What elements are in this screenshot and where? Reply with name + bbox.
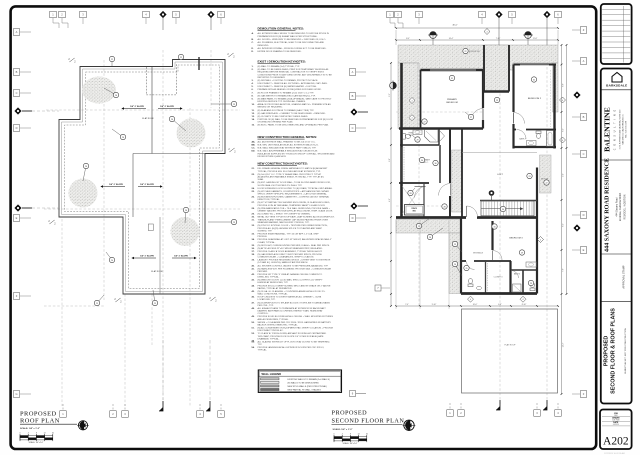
svg-text:AND ACCESSORIES, TYPICAL.: AND ACCESSORIES, TYPICAL. (258, 318, 290, 321)
svg-text:Encinitas, California 92024: Encinitas, California 92024 (619, 192, 622, 221)
svg-text:1/4":1' SLOPE: 1/4":1' SLOPE (140, 183, 154, 186)
svg-text:10.: 10. (252, 104, 255, 106)
svg-text:14.: 14. (252, 118, 255, 121)
svg-text:BATH 3: BATH 3 (514, 273, 520, 276)
svg-text:8'-0": 8'-0" (406, 38, 410, 40)
svg-text:PER MFR.: PER MFR. (258, 271, 269, 273)
svg-text:22: 22 (464, 51, 466, 53)
svg-text:BB.: BB. (252, 145, 256, 147)
svg-text:ROOF CRICKETS TO DIVERT WATER: ROOF CRICKETS TO DIVERT WATER AT ALL CHI… (258, 296, 322, 299)
svg-text:9'-8": 9'-8" (389, 158, 391, 162)
svg-text:25.: 25. (252, 191, 255, 193)
svg-text:LOCATIONS, TYP.: LOCATIONS, TYP. (258, 298, 276, 301)
svg-text:6'-2": 6'-2" (563, 128, 565, 132)
svg-text:PROVIDE 4 FIN. AT PAN HEAD; TE: PROVIDE 4 FIN. AT PAN HEAD; TEMPERED SAF… (258, 204, 326, 207)
svg-text:51.: 51. (252, 328, 255, 330)
svg-text:(N) 26 GA. G.I. FLASHING + COU: (N) 26 GA. G.I. FLASHING + COUNTERFLASHI… (258, 290, 326, 293)
svg-text:47.: 47. (252, 301, 255, 304)
svg-text:44.: 44. (252, 284, 255, 287)
svg-text:(E) ROOF: (E) ROOF (541, 179, 548, 181)
svg-text:REQUIRED BEFORE REMOVAL. CONTR: REQUIRED BEFORE REMOVAL. CONTRACTOR TO V… (258, 71, 325, 74)
svg-text:25: 25 (96, 303, 98, 305)
svg-text:26: 26 (85, 166, 87, 168)
svg-text:WALL CONDITIONS, TYPICAL.: WALL CONDITIONS, TYPICAL. (258, 293, 289, 296)
svg-text:PROPOSED: PROPOSED (604, 336, 610, 367)
svg-text:DISCONNECT + REMOVE ALL FIXTUR: DISCONNECT + REMOVE ALL FIXTURES + APPLI… (258, 82, 328, 85)
svg-text:4: 4 (487, 31, 488, 33)
svg-text:PAVING, TYPICAL AT PERIMETER.: PAVING, TYPICAL AT PERIMETER. (258, 287, 293, 290)
svg-text:1/4":1' SLOPE: 1/4":1' SLOPE (130, 105, 144, 108)
svg-text:FILL FRAME GENERAL FINISH MATE: FILL FRAME GENERAL FINISH MATERIALS TO M… (258, 167, 329, 170)
svg-text:23: 23 (528, 176, 530, 178)
svg-text:31: 31 (533, 79, 535, 81)
svg-text:7'-4": 7'-4" (405, 304, 409, 306)
svg-text:SAN DIEGO, CALIFORNIA 92131: SAN DIEGO, CALIFORNIA 92131 (622, 113, 625, 144)
svg-text:NEEDED OR REQUIRED.: NEEDED OR REQUIRED. (258, 107, 284, 109)
svg-text:8: 8 (350, 433, 351, 435)
svg-text:31: 31 (451, 78, 453, 80)
svg-text:TYPICAL.: TYPICAL. (258, 349, 268, 352)
svg-text:29: 29 (465, 268, 467, 270)
svg-text:39.: 39. (252, 260, 255, 262)
svg-text:STACK: STACK (411, 207, 417, 210)
svg-text:TYP.: TYP. (258, 344, 263, 346)
svg-text:NEW PARTIAL HT WALL / RAILING: NEW PARTIAL HT WALL / RAILING (288, 388, 322, 391)
svg-text:8'-6": 8'-6" (563, 83, 565, 87)
svg-text:444 SAXONY ROAD RESIDENCE: 444 SAXONY ROAD RESIDENCE (604, 158, 611, 252)
svg-text:PROVIDE LANDINGS AT ALL EXTERI: PROVIDE LANDINGS AT ALL EXTERIOR DOORS P… (258, 346, 325, 349)
svg-text:26: 26 (115, 95, 117, 97)
svg-text:29: 29 (521, 252, 523, 254)
svg-text:M.B. WALL INSULATION AT INTERI: M.B. WALL INSULATION AT INTERIOR PARTY W… (258, 147, 317, 150)
svg-text:46.: 46. (252, 296, 255, 299)
svg-text:FLAT ROOF: FLAT ROOF (142, 117, 154, 120)
svg-text:A: A (352, 70, 354, 74)
svg-text:ADJACENT; ANY HABITABLE SPACE,: ADJACENT; ANY HABITABLE SPACE, PLYWD ALL… (258, 175, 324, 178)
svg-text:45.: 45. (252, 290, 255, 293)
svg-text:4: 4 (562, 100, 563, 102)
svg-text:6'-8": 6'-8" (498, 304, 502, 306)
svg-text:FROM FIXTURE J) ANCHOR.: FROM FIXTURE J) ANCHOR. (258, 155, 287, 158)
svg-text:CEMENT BACKER; PROVIDE A FIN.: CEMENT BACKER; PROVIDE A FIN. AT ENCLOSU… (258, 209, 334, 212)
svg-text:(N) COMBO WC + SHELF, TYP. (VE: (N) COMBO WC + SHELF, TYP. (VERIFY W/ OW… (258, 213, 311, 215)
svg-text:SCALE: 1/4"=1'-0": SCALE: 1/4"=1'-0" (29, 441, 44, 444)
svg-text:28: 28 (409, 193, 411, 195)
svg-text:SECOND FLOOR PLAN: SECOND FLOOR PLAN (332, 418, 405, 425)
svg-text:33.: 33. (252, 234, 255, 236)
svg-text:SUBMITTAL SET: NOT FOR CONSTRU: SUBMITTAL SET: NOT FOR CONSTRUCTION (624, 328, 627, 374)
svg-text:7'-6": 7'-6" (563, 268, 565, 272)
svg-text:54.: 54. (252, 346, 255, 349)
svg-text:4: 4 (412, 118, 413, 120)
svg-text:23: 23 (418, 226, 420, 228)
svg-text:29.: 29. (252, 213, 255, 215)
svg-text:22.: 22. (252, 174, 255, 176)
svg-text:4: 4 (470, 299, 471, 301)
svg-text:COMBUSTION AIR + CLEARANCES, V: COMBUSTION AIR + CLEARANCES, VERIFY LOCA… (258, 256, 315, 259)
svg-text:DISCONNECT + REMOVE (E) WATER: DISCONNECT + REMOVE (E) WATER HEATER + D… (258, 85, 318, 88)
svg-text:BARKSDALE: BARKSDALE (606, 84, 627, 88)
svg-text:A: A (583, 59, 585, 63)
svg-text:9'-10": 9'-10" (432, 304, 437, 306)
svg-text:16: 16 (366, 433, 368, 435)
svg-text:(N) EXT. LANDING 36" DOOR WALL: (N) EXT. LANDING 36" DOOR WALL; TO BE SL… (258, 181, 331, 184)
svg-text:22: 22 (545, 182, 547, 184)
svg-text:4: 4 (412, 100, 413, 102)
svg-text:E: E (583, 248, 585, 252)
svg-text:SLOPE SHALL NOT EXCEED 2% IN A: SLOPE SHALL NOT EXCEED 2% IN ALL TYP. (258, 184, 303, 187)
svg-text:WALL LEGEND: WALL LEGEND (262, 372, 282, 376)
svg-text:50.: 50. (252, 322, 255, 324)
svg-text:ALL PLUMBING, ELECTRICAL, HVAC: ALL PLUMBING, ELECTRICAL, HVAC TO BE DIS… (258, 41, 325, 44)
svg-text:TEL: 619.555.0188: TEL: 619.555.0188 (626, 120, 628, 138)
svg-text:12: 12 (44, 432, 46, 434)
svg-text:B: B (16, 70, 18, 74)
svg-text:DWELLING, TYPICAL.: DWELLING, TYPICAL. (258, 276, 280, 279)
svg-text:CLOSET 3: CLOSET 3 (494, 277, 503, 279)
svg-text:38.: 38. (252, 254, 255, 256)
svg-text:42.: 42. (252, 273, 255, 276)
svg-text:(E) WALLS TO BE DEMOLISHED: (E) WALLS TO BE DEMOLISHED (288, 381, 320, 384)
svg-text:28.: 28. (252, 208, 255, 210)
svg-text:30: 30 (421, 160, 423, 162)
svg-text:7'-10": 7'-10" (496, 38, 501, 40)
svg-text:ROOF PLAN: ROOF PLAN (20, 418, 60, 425)
svg-text:OR WINDOW OPENING PER PLAN.: OR WINDOW OPENING PER PLAN. (258, 121, 294, 124)
svg-text:PROVIDE STUCCO WEEP SCREED MIN: PROVIDE STUCCO WEEP SCREED MIN 4" ABOVE … (258, 284, 332, 287)
svg-text:SCALE: 1/4"=1'-0": SCALE: 1/4"=1'-0" (343, 442, 358, 445)
svg-text:SECOND FLOOR & ROOF PLANS: SECOND FLOOR & ROOF PLANS (611, 308, 617, 394)
svg-text:0: 0 (20, 432, 21, 434)
svg-text:22: 22 (180, 57, 182, 59)
svg-text:TO CLASS 'A' TORCH-DOWN, ASPHA: TO CLASS 'A' TORCH-DOWN, ASPHALT ROOFING… (258, 332, 327, 335)
svg-text:1/4":1' SLOPE: 1/4":1' SLOPE (160, 105, 174, 108)
svg-text:(E) SLAB AND FOOTINGS TO REMAI: (E) SLAB AND FOOTINGS TO REMAIN (GALV. T… (258, 109, 315, 112)
svg-text:SPECS; VERIFY SPECIFIC REQUIRE: SPECS; VERIFY SPECIFIC REQUIREMENTS + LA… (258, 192, 328, 195)
svg-text:8: 8 (36, 432, 37, 434)
svg-text:24: 24 (454, 264, 456, 266)
svg-text:ALL EXHAUST FANS TO TERMINATE: ALL EXHAUST FANS TO TERMINATE AT EXTERIO… (258, 307, 327, 310)
svg-text:DRAINAGE, TYPICAL.: DRAINAGE, TYPICAL. (258, 337, 280, 340)
svg-text:C O N S U L T I N G: C O N S U L T I N G (615, 109, 617, 151)
svg-text:FLAT ROOF: FLAT ROOF (504, 344, 516, 347)
svg-text:'DIPLOMAT'; PROVIDE ROOF SLOPE: 'DIPLOMAT'; PROVIDE ROOF SLOPE 1/4":12 M… (258, 335, 325, 338)
svg-text:21.: 21. (252, 168, 255, 170)
svg-text:EXISTING SERVICE TYP. DURING A: EXISTING SERVICE TYP. DURING ALL PHASES. (258, 100, 307, 103)
svg-text:4'-6": 4'-6" (389, 198, 391, 202)
svg-text:52.: 52. (252, 333, 255, 335)
svg-text:PROVIDE STAIR HANDRAIL, TYP. 3: PROVIDE STAIR HANDRAIL, TYP. 34"-38" AFF… (258, 233, 320, 236)
svg-text:(N) ATTIC ACCESS 22"x30" MIN W: (N) ATTIC ACCESS 22"x30" MIN W/ WEATHERS… (258, 247, 324, 250)
svg-text:16: 16 (52, 432, 54, 434)
svg-text:44.: 44. (252, 340, 255, 343)
svg-text:(N) 2x6 @16" O.C. TYPE 'X' SHE: (N) 2x6 @16" O.C. TYPE 'X' SHEAR WALL PE… (258, 173, 322, 176)
svg-text:24: 24 (429, 237, 431, 239)
svg-text:(E) GAS FIREPLACE + CHIMNEY TO: (E) GAS FIREPLACE + CHIMNEY TO BE DEMOLI… (258, 112, 327, 115)
svg-text:ALL (N) EXTERIOR WALL FRAMING: ALL (N) EXTERIOR WALL FRAMING TO BE 2x6 … (258, 141, 316, 144)
svg-text:PROFILE.: PROFILE. (258, 236, 268, 238)
svg-text:32.: 32. (252, 225, 255, 227)
svg-text:B: B (352, 94, 354, 98)
svg-text:23: 23 (233, 104, 235, 106)
svg-text:ALL EXTERIOR WALL SIDING TO BE: ALL EXTERIOR WALL SIDING TO BE REMOVED T… (258, 32, 330, 35)
svg-text:PRIMARY: PRIMARY (447, 98, 457, 101)
svg-text:31.: 31. (252, 220, 255, 222)
svg-text:DRAWN: DRAWN (612, 416, 620, 419)
svg-text:ALL SHOWER CONTROL VALVES TO B: ALL SHOWER CONTROL VALVES TO BE PRESSURE… (258, 264, 329, 267)
svg-text:(E) FLOOR FRAMING TO REMAIN (2: (E) FLOOR FRAMING TO REMAIN (2x12 @16" O… (258, 91, 315, 94)
svg-text:(N) 42" HT PARTIAL TILE SHOWER: (N) 42" HT PARTIAL TILE SHOWER ENCLOSURE… (258, 201, 331, 204)
svg-text:DD.: DD. (252, 151, 256, 153)
svg-text:SCREED, TYP.: SCREED, TYP. (258, 230, 273, 232)
svg-text:41.: 41. (252, 267, 255, 270)
svg-text:M.B. WIN. UNIT INSULATION AT A: M.B. WIN. UNIT INSULATION AT ALL EXTERIO… (258, 144, 319, 147)
svg-text:37.: 37. (252, 251, 255, 253)
svg-text:WEATHER BARRIER, MATCH EXIST.: WEATHER BARRIER, MATCH EXIST. PROFILE, T… (258, 221, 310, 224)
svg-text:B: B (583, 115, 585, 119)
svg-text:PROVIDE ALL (E)/(N) LATHING SP: PROVIDE ALL (E)/(N) LATHING SPLICE TO PL… (258, 227, 323, 230)
svg-text:NEW CONSTRUCTION KEYNOTES:: NEW CONSTRUCTION KEYNOTES: (258, 162, 308, 166)
svg-text:16'-4": 16'-4" (449, 38, 454, 40)
svg-text:4: 4 (562, 140, 563, 142)
svg-text:APPROVAL STAMP: APPROVAL STAMP (622, 265, 626, 288)
svg-text:REPORTED TO DESIGNER.: REPORTED TO DESIGNER. (258, 77, 286, 79)
svg-text:30.: 30. (252, 217, 255, 219)
svg-text:25: 25 (154, 303, 156, 305)
svg-text:27: 27 (423, 121, 425, 123)
svg-text:(E) MAIN PANEL TO REMAIN (200A: (E) MAIN PANEL TO REMAIN (200A UPGRADE),… (258, 97, 333, 100)
svg-text:27: 27 (470, 117, 472, 119)
svg-text:40.: 40. (252, 264, 255, 267)
svg-text:DIRECTION, TYPICAL.: DIRECTION, TYPICAL. (258, 198, 281, 201)
svg-text:28: 28 (443, 206, 445, 208)
svg-text:1/4":1' SLOPE: 1/4":1' SLOPE (109, 183, 123, 186)
svg-text:CONDITIONS PRIOR TO ANY DEMO W: CONDITIONS PRIOR TO ANY DEMO WORK. ANY D… (258, 73, 333, 76)
svg-text:13.: 13. (252, 116, 255, 118)
svg-text:(N) A/C CONDENSER ON EQUIPMENT: (N) A/C CONDENSER ON EQUIPMENT PAD; VERI… (258, 327, 334, 330)
svg-text:36.: 36. (252, 248, 255, 250)
svg-text:BATH 2: BATH 2 (519, 138, 525, 141)
svg-text:5'-2": 5'-2" (389, 93, 391, 97)
svg-text:D: D (352, 216, 354, 220)
svg-text:49.: 49. (252, 315, 255, 318)
svg-text:SMOKE + CO ALARMS PER CRC R314: SMOKE + CO ALARMS PER CRC R314 / R315: H… (258, 321, 332, 324)
svg-text:PROVIDE CLASS 'A' ROOF ASSEMBL: PROVIDE CLASS 'A' ROOF ASSEMBLY, TYPICAL… (258, 250, 323, 253)
svg-text:SLAB.: SLAB. (258, 178, 264, 181)
svg-text:D: D (583, 213, 585, 217)
svg-text:PROPOSED: PROPOSED (20, 411, 57, 418)
svg-text:(N) WINDOW / DOOR: U-0.30 MAX,: (N) WINDOW / DOOR: U-0.30 MAX, SHGC 0.23… (258, 279, 323, 282)
svg-text:DATE: DATE (613, 421, 619, 424)
svg-text:1/4":1' SLOPE: 1/4":1' SLOPE (174, 254, 188, 257)
svg-text:FLAT ROOF: FLAT ROOF (151, 270, 163, 273)
svg-text:C: C (16, 91, 18, 95)
svg-text:(E) DRYWALL + FOOTING TO REMAI: (E) DRYWALL + FOOTING TO REMAIN, PROTECT… (258, 79, 319, 82)
svg-text:(E) ELEC. PANEL TO BE DISCONNE: (E) ELEC. PANEL TO BE DISCONNECTED AND U… (258, 124, 330, 127)
svg-text:BEDROOM 3: BEDROOM 3 (509, 238, 523, 240)
svg-text:12.: 12. (252, 113, 255, 115)
svg-text:CLEAR, TYPICAL.: CLEAR, TYPICAL. (258, 241, 276, 244)
svg-text:24: 24 (122, 137, 124, 139)
svg-text:JOB: JOB (614, 413, 619, 415)
svg-text:(N) PRE-FABRICATED TUB + TILE: (N) PRE-FABRICATED TUB + TILE WALL SURRO… (258, 207, 331, 210)
svg-text:0: 0 (334, 433, 335, 435)
svg-text:SCALE: 1/4" = 1'-0": SCALE: 1/4" = 1'-0" (20, 427, 40, 430)
svg-text:14'-2": 14'-2" (563, 342, 565, 347)
svg-text:A202: A202 (603, 436, 629, 448)
svg-text:EGRESS AT BEDROOMS, TYP.: EGRESS AT BEDROOMS, TYP. (258, 281, 289, 284)
svg-text:BEDROOM: BEDROOM (446, 102, 457, 104)
svg-text:ALL INTERIOR DRYWALL, FROM FLO: ALL INTERIOR DRYWALL, FROM FLOORING ECT.… (258, 47, 327, 50)
svg-text:23: 23 (454, 244, 456, 246)
svg-text:29: 29 (416, 139, 418, 141)
svg-text:ALL GLAZING WITHIN 18" OF FLOO: ALL GLAZING WITHIN 18" OF FLOOR OR AT DO… (258, 340, 331, 343)
svg-text:(N) TANKLESS W.H. PER PLUMBING: (N) TANKLESS W.H. PER PLUMBING; PROVIDE … (258, 267, 332, 270)
svg-text:1/22/2024 10:42:18 AM: 1/22/2024 10:42:18 AM (604, 452, 625, 455)
svg-text:(N) DOWNSPOUTS TO SPLASH BLOCK: (N) DOWNSPOUTS TO SPLASH BLOCKS / TIGHTL… (258, 301, 331, 304)
svg-text:(E) WALL TO REMAIN (2x4) TYPIC: (E) WALL TO REMAIN (2x4) TYPICAL, TYP. (258, 65, 301, 68)
svg-text:VESTIBULE: VESTIBULE (473, 253, 484, 255)
svg-text:26.: 26. (252, 197, 255, 199)
svg-text:NEW CONSTRUCTION GENERAL NOTES: NEW CONSTRUCTION GENERAL NOTES: (258, 135, 318, 139)
svg-text:22: 22 (111, 59, 113, 61)
svg-text:PREPARE SITE AS NEEDED OR REQU: PREPARE SITE AS NEEDED OR REQUIRED FOR D… (258, 88, 322, 91)
svg-text:ALL DOORS + WINDOWS TO BE REMO: ALL DOORS + WINDOWS TO BE REMOVED + DISP… (258, 38, 327, 41)
svg-text:27.: 27. (252, 202, 255, 204)
svg-text:11'-8": 11'-8" (533, 38, 538, 40)
svg-text:8'-2": 8'-2" (563, 223, 565, 227)
svg-text:BEDROOM 2: BEDROOM 2 (528, 98, 542, 100)
svg-text:3170 JUPITER ROAD LA MESA, SUI: 3170 JUPITER ROAD LA MESA, SUITE 200 (619, 109, 622, 150)
svg-text:PROVIDE 5/8" TYPE 'X' GWB AT G: PROVIDE 5/8" TYPE 'X' GWB AT GARAGE CEIL… (258, 273, 323, 276)
svg-text:(N) GAS FIREPLACE DIRECT VENT: (N) GAS FIREPLACE DIRECT VENT PER MFR SP… (258, 253, 323, 256)
svg-text:ENTIRE ROOF FRAMING TO BE REMO: ENTIRE ROOF FRAMING TO BE REMOVED. (258, 50, 302, 53)
svg-text:C: C (583, 152, 585, 156)
svg-text:C: C (352, 126, 354, 130)
svg-text:W.I.C.: W.I.C. (424, 162, 429, 164)
svg-text:CC.: CC. (252, 148, 256, 150)
svg-text:BACKUP, INTERCONNECTED, TYPICA: BACKUP, INTERCONNECTED, TYPICAL. (258, 323, 299, 326)
svg-text:DEMOLITION GENERAL NOTES:: DEMOLITION GENERAL NOTES: (258, 27, 304, 31)
svg-text:DOOR SCREENS FLOOR SLOPED TO (: DOOR SCREENS FLOOR SLOPED TO (E) DRAIN; … (258, 187, 333, 190)
svg-text:30: 30 (434, 163, 436, 165)
svg-text:46'-0": 46'-0" (452, 25, 457, 27)
svg-text:(E) ROOF DN: (E) ROOF DN (469, 51, 480, 53)
svg-text:1/4":1' SLOPE: 1/4":1' SLOPE (140, 254, 154, 257)
svg-text:35.: 35. (252, 245, 255, 247)
svg-text:23: 23 (233, 222, 235, 224)
svg-text:(E) GAS METER TO REMAIN (RELOC: (E) GAS METER TO REMAIN (RELOCATE AS REQ… (258, 94, 316, 97)
svg-text:8'-10": 8'-10" (522, 304, 527, 306)
svg-text:34.: 34. (252, 238, 255, 241)
svg-text:NEW STUD WALLS (PER STRUCTURAL: NEW STUD WALLS (PER STRUCTURAL) (288, 385, 328, 388)
svg-text:DAMPER; BATH FANS 50 CFM MIN,: DAMPER; BATH FANS 50 CFM MIN, ENERGY STA… (258, 310, 324, 313)
svg-text:9'-0": 9'-0" (563, 173, 565, 177)
svg-text:PROVIDE SOLID BLOCKING AT ALL: PROVIDE SOLID BLOCKING AT ALL CEILING + … (258, 315, 334, 318)
svg-text:48.: 48. (252, 307, 255, 310)
svg-text:(N) SKYLIGHT, CURB MOUNTED PER: (N) SKYLIGHT, CURB MOUNTED PER MFR; FLAS… (258, 244, 331, 247)
svg-text:SCALE: 1/4" = 1'-0": SCALE: 1/4" = 1'-0" (333, 428, 353, 431)
svg-text:METAL GUTTERS TYP AT ROOF EAVE: METAL GUTTERS TYP AT ROOF EAVE, LEAF SCR… (258, 216, 335, 219)
svg-text:10'-0": 10'-0" (473, 304, 478, 306)
svg-text:PER CIVIL, TYP.: PER CIVIL, TYP. (258, 305, 274, 307)
svg-text:4: 4 (523, 299, 524, 301)
svg-text:24.: 24. (252, 187, 255, 190)
svg-text:31: 31 (493, 226, 495, 228)
svg-text:AA.: AA. (252, 141, 256, 144)
svg-text:(N) ELEVATION FUTURES, CABINET: (N) ELEVATION FUTURES, CABINETRY + LIGHT… (258, 196, 330, 199)
svg-text:DISCONNECT PER ELEC.: DISCONNECT PER ELEC. (258, 330, 284, 332)
svg-text:INSULATION SUPPLIED BY "TRUSCO: INSULATION SUPPLIED BY "TRUSCOR GROUP" O… (258, 152, 336, 155)
svg-text:REMODEL / ADDITION: REMODEL / ADDITION (624, 194, 627, 219)
svg-text:(E) WALL TO BE DEMOLISHED, PRE: (E) WALL TO BE DEMOLISHED, PREP FOR TEMP… (258, 68, 329, 71)
svg-text:34: 34 (502, 209, 504, 211)
svg-text:(14' MAX EQ. LENGTH); MAKE-UP: (14' MAX EQ. LENGTH); MAKE-UP AIR PER ME… (258, 261, 309, 264)
svg-text:D: D (16, 126, 18, 130)
svg-text:11.: 11. (252, 110, 255, 112)
svg-text:EXISTING WALLS TO REMAIN (2x4: EXISTING WALLS TO REMAIN (2x4 WALLS) (288, 378, 330, 381)
svg-text:(N) KITCHEN CABINETS, COUNTERT: (N) KITCHEN CABINETS, COUNTERTOPS + APPL… (258, 190, 330, 193)
svg-text:LAUNDRY: PROVIDE RECESSED W/ B: LAUNDRY: PROVIDE RECESSED W/ BOX + DRYER… (258, 259, 331, 262)
svg-text:REMOVED.: REMOVED. (258, 45, 270, 47)
svg-text:15.: 15. (252, 125, 255, 127)
svg-text:26: 26 (171, 119, 173, 121)
svg-text:G: G (15, 392, 17, 396)
svg-text:4: 4 (540, 239, 541, 241)
svg-text:(E) CLOSETS TO BE COMPLETELY D: (E) CLOSETS TO BE COMPLETELY DEMOLISHED. (258, 116, 309, 118)
svg-text:"HARDIE-PLANK" FIBER-CEMENT LA: "HARDIE-PLANK" FIBER-CEMENT LAP SIDING P… (258, 219, 329, 222)
svg-text:23: 23 (496, 100, 498, 102)
svg-text:PROPOSED: PROPOSED (332, 410, 368, 417)
svg-text:12: 12 (358, 433, 360, 435)
svg-text:EXIST / DEMOLITION KEYNOTES:: EXIST / DEMOLITION KEYNOTES: (258, 60, 306, 64)
svg-text:4: 4 (28, 432, 29, 434)
svg-text:AREA OF PROPOSED ADDITION, GRA: AREA OF PROPOSED ADDITION, GRADING MATCH… (258, 103, 332, 106)
svg-text:TYPICAL; PROVIDE M.B. FILL INS: TYPICAL; PROVIDE M.B. FILL INSULATION AT… (258, 170, 321, 173)
svg-text:4: 4 (342, 433, 343, 435)
svg-text:CONTROL.: CONTROL. (258, 313, 269, 315)
svg-text:PORTION OF (E) WALL TO BE REMO: PORTION OF (E) WALL TO BE REMOVED IN PRE… (258, 118, 334, 121)
svg-text:PROVIDE GUARDRAIL AT LOFT 42": PROVIDE GUARDRAIL AT LOFT 42" MIN HT; BA… (258, 238, 332, 241)
svg-text:43.: 43. (252, 279, 255, 282)
svg-text:24: 24 (111, 260, 113, 262)
svg-text:M.B. GALV. AIR-PERMEABLE INSUL: M.B. GALV. AIR-PERMEABLE INSULATION AT C… (258, 150, 318, 153)
svg-text:26: 26 (185, 210, 187, 212)
svg-text:E: E (16, 216, 18, 220)
svg-text:PREPARATION FOR (N) SHEAR WALL: PREPARATION FOR (N) SHEAR WALLS PER STRU… (258, 35, 318, 38)
svg-text:A: A (16, 30, 18, 34)
svg-text:29: 29 (530, 283, 532, 285)
svg-text:LOFT: LOFT (497, 174, 503, 176)
svg-text:23.: 23. (252, 182, 255, 184)
